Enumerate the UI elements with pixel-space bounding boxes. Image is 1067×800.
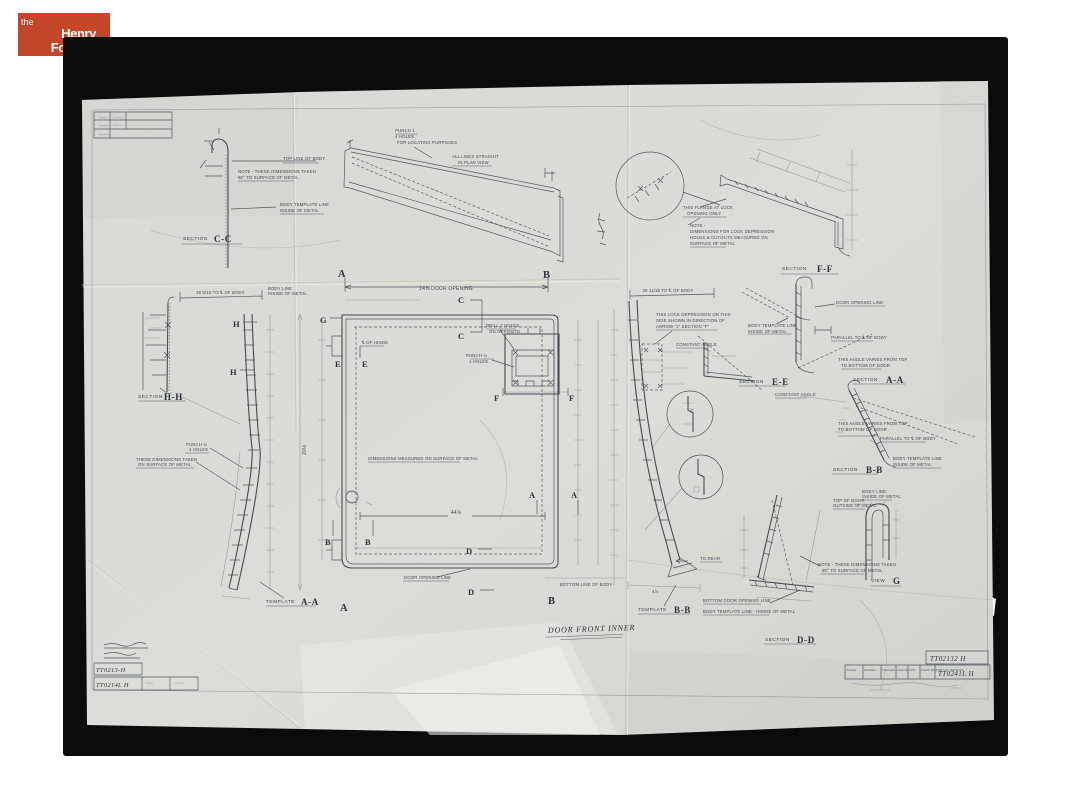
dim-44-label: 44⅞ — [451, 510, 462, 516]
lockdim-note4: SURFACE OF METAL — [690, 241, 736, 246]
marker-a-bottom: A — [340, 603, 348, 614]
lock-note1: THIS LOCK DEPRESSION ON THIS — [656, 312, 731, 317]
bottom-line-body-label: BOTTOM LINE OF BODY — [560, 582, 612, 587]
body-template-label2: INSIDE OF METAL — [748, 329, 787, 334]
section-word: SECTION — [138, 394, 163, 400]
punch18-label2: 4 HOLES — [189, 447, 208, 452]
cell-app: APP. — [909, 668, 916, 672]
parallel-label2: PARALLEL TO ℄ OF BODY — [880, 436, 936, 441]
flange-label1: THIS FLANGE AT LOCK — [683, 205, 733, 210]
lockdim-note1: NOTE - — [690, 223, 706, 228]
marker-d1: D — [466, 546, 472, 556]
template-bb-name: B-B — [674, 605, 691, 615]
section-hh-name: H-H — [164, 392, 183, 402]
marker-h2: H — [230, 367, 237, 377]
marker-h1: H — [233, 319, 240, 329]
section-word: SECTION — [765, 637, 790, 643]
section-ee-name: E-E — [772, 377, 789, 387]
marker-c2: C — [458, 331, 464, 341]
template-aa-name: A-A — [301, 597, 319, 607]
section-ff-name: F-F — [817, 264, 833, 274]
punch14-label1: PUNCH ¼ — [466, 353, 487, 358]
lockdim-note2: DIMENSIONS FOR LOCK DEPRESSION — [690, 229, 774, 234]
top-line-of-body-label: TOP LINE OF BODY — [283, 156, 325, 161]
drawing-sheet — [82, 81, 994, 735]
punch14-label2: 4 HOLES — [469, 359, 488, 364]
view-g-name: G — [893, 576, 901, 586]
section-aa-name: A-A — [886, 375, 904, 385]
body-template-dash-label: BODY TEMPLATE LINE - INSIDE OF METAL — [703, 609, 796, 614]
section-word: SECTION — [833, 467, 858, 473]
punch1-label2: 4 HOLES — [395, 134, 414, 139]
dd-note2: 90° TO SURFACE OF METAL — [822, 568, 883, 573]
blueprint-photo-scene: the Henry Ford NOT — [0, 0, 1067, 800]
dim-478-label: 4⅞ — [652, 589, 659, 594]
angle-varies2-b: TO BOTTOM OF DOOR — [838, 427, 887, 432]
marker-b-top: B — [543, 270, 550, 281]
marker-b-bottom: B — [548, 596, 555, 607]
flange-label2: OPENING ONLY — [687, 211, 721, 216]
cell-traced: TRACED — [882, 668, 896, 672]
drill2-label2: ON OPPOSITE — [489, 329, 520, 334]
marker-b-mid1: B — [325, 537, 331, 547]
cc-note-line2: 90° TO SURFACE OF METAL — [238, 175, 299, 180]
museum-photo-page: the Henry Ford NOT — [0, 0, 1067, 800]
cell-drawn: DRAWN — [864, 668, 876, 672]
body-template-label1: BODY TEMPLATE LINE — [280, 202, 329, 207]
cc-note-line1: NOTE - THESE DIMENSIONS TAKEN — [238, 169, 316, 174]
section-bb-name: B-B — [866, 465, 883, 475]
constant-angle-label1: CONSTANT ANGLE — [676, 342, 717, 347]
marker-a-mid2: A — [571, 490, 578, 500]
drill2-label1: DRILL 2 HOLES — [486, 323, 519, 328]
dim-28-label: 28 11/16 TO ℄ OF BODY — [642, 288, 693, 293]
parallel-label1: PARALLEL TO ℄ OF BODY — [831, 335, 887, 340]
top-of-door2: OUTSIDE OF METAL — [833, 503, 877, 508]
cell-check: CHECK — [897, 668, 908, 672]
right-drawing-number1: TT02132 H — [930, 655, 966, 663]
punch1-label1: PUNCH 1 — [395, 128, 415, 133]
dim-18-label: 18 5/16 TO ℄ OF BODY — [196, 290, 245, 295]
section-word: SECTION — [853, 377, 878, 383]
marker-b-mid2: B — [365, 537, 371, 547]
marker-e1: E — [335, 359, 341, 369]
marker-f2: F — [569, 393, 574, 403]
door-opening-dim: 14⅞ DOOR OPENING — [419, 286, 473, 292]
body-template-label2: INSIDE OF METAL — [280, 208, 319, 213]
dims-measured-label: DIMENSIONS MEASURED ON SURFACE OF METAL — [368, 456, 479, 461]
angle-varies1-a: THIS ANGLE VARIES FROM TOP — [838, 357, 908, 362]
section-word: SECTION — [782, 266, 807, 272]
angle-varies2-a: TO BOTTOM OF DOOR — [841, 363, 890, 368]
marker-c1: C — [458, 295, 464, 305]
lockdim-note3: HOLES & CUTOUTS MEASURED ON — [690, 235, 768, 240]
section-word: SECTION — [739, 379, 764, 385]
template-word: TEMPLATE — [266, 599, 295, 605]
g-body-line2: INSIDE OF METAL — [862, 494, 901, 499]
dim-20-label: 20½ — [301, 444, 308, 455]
cell-scale: SCALE — [846, 668, 856, 672]
marker-d2: D — [468, 587, 474, 597]
cl-hinge-label: ℄ OF HINGE — [361, 340, 388, 345]
left-drawing-number1: TT0213-H — [96, 667, 126, 674]
surface-note2: ON SURFACE OF METAL — [138, 462, 192, 467]
door-opening-line-label: DOOR OPENING LINE — [404, 575, 451, 580]
view-word: VIEW — [871, 578, 885, 584]
marker-a-top: A — [338, 269, 346, 280]
right-drawing-number2: TT0241L H — [938, 670, 975, 678]
section-cc-name: C-C — [214, 234, 232, 244]
straight-label2: IN PLAN VIEW — [458, 160, 489, 165]
door-opening-line-label: DOOR OPENING LINE — [836, 300, 883, 305]
angle-varies1-b: THIS ANGLE VARIES FROM TOP — [838, 421, 908, 426]
lock-note3: ARROW "J" SECTION "F" — [656, 324, 709, 329]
body-template-label1: BODY TEMPLATE LINE — [893, 456, 942, 461]
template-word: TEMPLATE — [638, 607, 667, 613]
body-template-label1: BODY TEMPLATE LINE — [748, 323, 797, 328]
section-dd-name: D-D — [797, 635, 815, 645]
dd-note1: NOTE - THESE DIMENSIONS TAKEN — [818, 562, 896, 567]
body-line-label2: INSIDE OF METAL — [268, 291, 307, 296]
left-drawing-number2: TT0214L H — [96, 682, 129, 689]
marker-g: G — [320, 315, 327, 325]
straight-label1: ALL LINES STRAIGHT — [452, 154, 499, 159]
body-template-label2: INSIDE OF METAL — [893, 462, 932, 467]
marker-f1: F — [494, 393, 499, 403]
to-rear-label: TO REAR — [700, 556, 720, 561]
bottom-door-opening-label: BOTTOM DOOR OPENING LINE — [703, 598, 771, 603]
marker-a-mid1: A — [529, 490, 536, 500]
logo-the: the — [21, 17, 34, 27]
punch1-label3: FOR LOCATING PURPOSES — [397, 140, 457, 145]
lock-note2: SIDE SHOWN IN DIRECTION OF — [656, 318, 725, 323]
section-word: SECTION — [183, 236, 208, 242]
marker-e2: E — [362, 359, 368, 369]
constant-angle-label2: CONSTANT ANGLE — [775, 392, 816, 397]
